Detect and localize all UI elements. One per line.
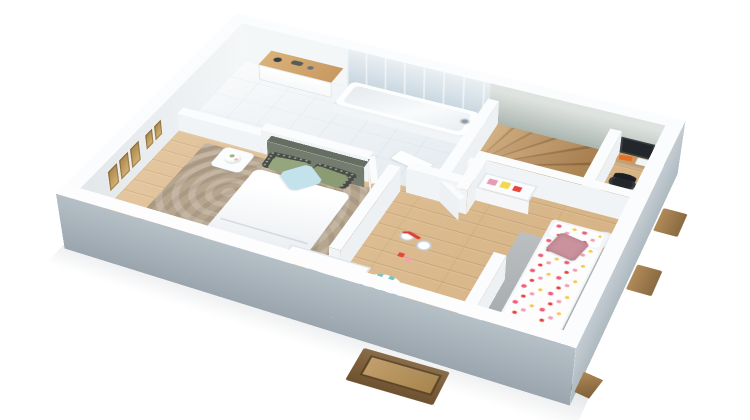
wall-frame xyxy=(118,150,130,181)
toy xyxy=(486,178,498,186)
wall-frame xyxy=(145,127,155,151)
tricycle-wheel xyxy=(416,240,433,250)
vanity-accessory xyxy=(290,60,304,66)
toy xyxy=(499,181,511,189)
toy xyxy=(512,186,523,193)
floorplan-render xyxy=(0,0,750,420)
wall-frame xyxy=(129,139,141,170)
wall-frame xyxy=(107,162,120,193)
tricycle xyxy=(398,229,431,250)
vanity-accessory xyxy=(306,66,315,71)
tricycle-handle xyxy=(402,231,411,233)
scene xyxy=(0,0,750,420)
vanity-accessory xyxy=(272,57,283,63)
floor-plan xyxy=(62,51,679,391)
wall-frame xyxy=(153,118,162,142)
